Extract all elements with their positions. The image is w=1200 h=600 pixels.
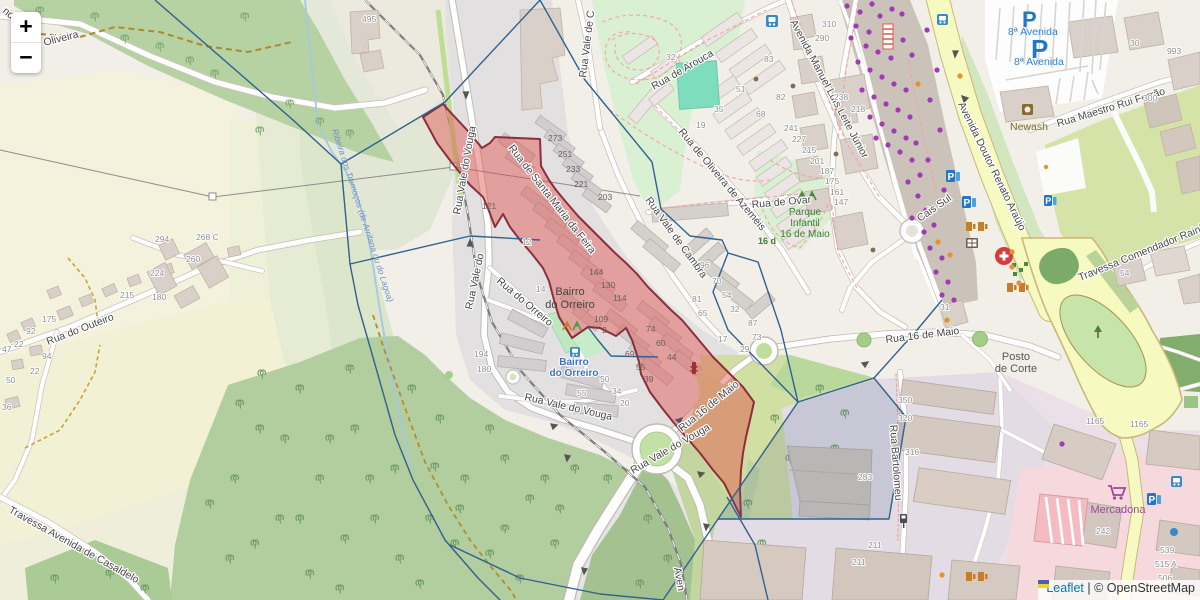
- svg-text:87: 87: [748, 318, 758, 328]
- svg-text:147: 147: [834, 197, 848, 207]
- svg-text:290: 290: [815, 33, 829, 43]
- svg-text:180: 180: [477, 364, 491, 374]
- svg-text:14: 14: [536, 284, 546, 294]
- svg-text:211: 211: [852, 557, 866, 567]
- svg-text:16 d: 16 d: [758, 236, 776, 246]
- svg-text:175: 175: [42, 314, 56, 324]
- svg-text:35: 35: [714, 104, 724, 114]
- svg-text:Mercadona: Mercadona: [1090, 504, 1146, 516]
- svg-text:Bairro: Bairro: [559, 357, 588, 368]
- svg-text:273: 273: [548, 133, 562, 143]
- svg-text:194: 194: [474, 349, 488, 359]
- svg-text:92: 92: [26, 326, 36, 336]
- svg-text:55: 55: [577, 388, 587, 398]
- svg-text:227: 227: [792, 134, 806, 144]
- svg-text:320: 320: [898, 413, 912, 423]
- svg-text:81: 81: [692, 294, 702, 304]
- svg-text:44: 44: [667, 352, 677, 362]
- svg-text:39: 39: [644, 374, 654, 384]
- svg-text:2: 2: [602, 325, 607, 335]
- svg-text:993: 993: [1167, 46, 1181, 56]
- svg-text:215: 215: [802, 145, 816, 155]
- svg-text:180: 180: [152, 292, 166, 302]
- svg-text:Parque: Parque: [789, 207, 822, 218]
- svg-text:50: 50: [6, 375, 16, 385]
- svg-text:19: 19: [696, 120, 706, 130]
- svg-text:12: 12: [522, 237, 532, 247]
- svg-text:Infantil: Infantil: [790, 218, 819, 229]
- svg-text:65: 65: [698, 308, 708, 318]
- svg-text:121: 121: [482, 201, 496, 211]
- svg-text:1165: 1165: [1130, 419, 1149, 429]
- svg-text:30: 30: [1130, 38, 1140, 48]
- svg-text:31: 31: [940, 302, 950, 312]
- svg-text:495: 495: [362, 14, 376, 24]
- svg-text:539: 539: [1160, 545, 1174, 555]
- svg-text:515 A: 515 A: [1155, 559, 1177, 569]
- svg-text:211: 211: [868, 540, 882, 550]
- svg-text:83: 83: [764, 54, 774, 64]
- svg-text:69: 69: [625, 349, 635, 359]
- svg-text:161: 161: [830, 187, 844, 197]
- svg-text:316: 316: [905, 447, 919, 457]
- svg-text:94: 94: [42, 351, 52, 361]
- svg-text:130: 130: [601, 280, 615, 290]
- svg-text:201: 201: [810, 156, 824, 166]
- svg-text:283: 283: [858, 472, 872, 482]
- svg-text:8ª Avenida: 8ª Avenida: [1014, 56, 1064, 68]
- svg-text:238: 238: [834, 92, 848, 102]
- svg-text:218: 218: [851, 104, 865, 114]
- svg-text:34: 34: [612, 386, 622, 396]
- svg-text:P: P: [1149, 495, 1156, 506]
- svg-text:do Orreiro: do Orreiro: [550, 368, 599, 379]
- svg-text:175: 175: [825, 176, 839, 186]
- svg-text:294: 294: [155, 234, 169, 244]
- svg-text:22: 22: [30, 366, 40, 376]
- svg-text:109: 109: [594, 314, 608, 324]
- svg-text:P: P: [948, 172, 955, 183]
- svg-text:144: 144: [589, 267, 603, 277]
- svg-text:Newash: Newash: [1010, 121, 1048, 133]
- svg-text:233: 233: [566, 164, 580, 174]
- svg-text:215: 215: [120, 290, 134, 300]
- svg-text:32: 32: [730, 304, 740, 314]
- svg-text:20: 20: [620, 398, 630, 408]
- svg-text:P: P: [964, 198, 971, 209]
- svg-text:29: 29: [740, 344, 750, 354]
- svg-text:36: 36: [2, 402, 12, 412]
- svg-text:32: 32: [666, 52, 676, 62]
- svg-text:82: 82: [776, 92, 786, 102]
- svg-text:16 de Maio: 16 de Maio: [780, 229, 830, 240]
- svg-text:50: 50: [600, 374, 610, 384]
- svg-text:260: 260: [186, 254, 200, 264]
- svg-text:187: 187: [820, 166, 834, 176]
- svg-text:47: 47: [2, 344, 12, 354]
- svg-text:22: 22: [14, 339, 24, 349]
- svg-text:310: 310: [822, 19, 836, 29]
- svg-text:Bairro: Bairro: [555, 286, 584, 298]
- svg-text:73: 73: [752, 332, 762, 342]
- svg-text:do Orreiro: do Orreiro: [545, 299, 595, 311]
- svg-text:114: 114: [613, 293, 627, 303]
- svg-text:17: 17: [718, 334, 728, 344]
- svg-text:242: 242: [1096, 526, 1110, 536]
- svg-text:300: 300: [1143, 93, 1157, 103]
- svg-text:de Corte: de Corte: [995, 363, 1037, 375]
- svg-text:Posto: Posto: [1002, 351, 1030, 363]
- svg-text:60: 60: [656, 338, 666, 348]
- svg-text:251: 251: [558, 149, 572, 159]
- svg-text:96: 96: [700, 260, 710, 270]
- svg-text:70: 70: [712, 276, 722, 286]
- svg-text:241: 241: [784, 123, 798, 133]
- svg-text:350: 350: [898, 395, 912, 405]
- svg-text:51: 51: [736, 84, 746, 94]
- svg-text:224: 224: [150, 268, 164, 278]
- svg-text:268 C: 268 C: [196, 232, 219, 242]
- svg-text:54: 54: [722, 290, 732, 300]
- svg-text:P: P: [1045, 196, 1051, 206]
- svg-text:221: 221: [574, 179, 588, 189]
- svg-text:74: 74: [646, 324, 656, 334]
- svg-text:55: 55: [636, 362, 646, 372]
- svg-text:1165: 1165: [1086, 416, 1105, 426]
- svg-text:68: 68: [756, 109, 766, 119]
- svg-text:54: 54: [1120, 268, 1130, 278]
- svg-text:203: 203: [598, 192, 612, 202]
